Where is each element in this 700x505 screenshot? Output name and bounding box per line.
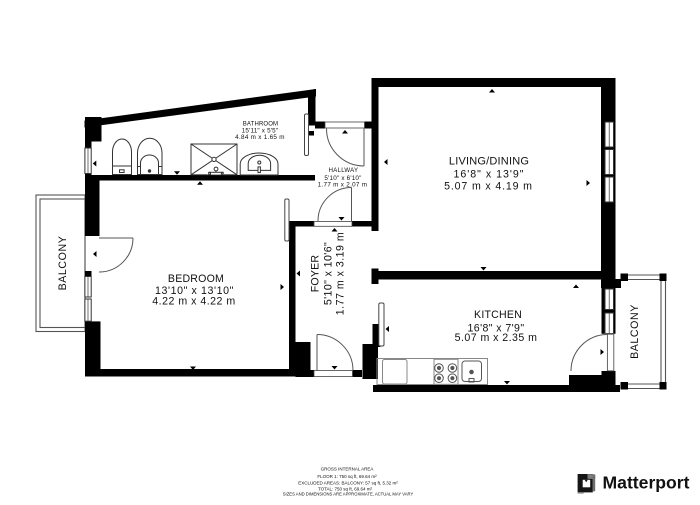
svg-text:SIZES AND DIMENSIONS ARE APPRO: SIZES AND DIMENSIONS ARE APPROXIMATE, AC… bbox=[283, 492, 414, 497]
svg-text:BATHROOM: BATHROOM bbox=[243, 122, 278, 128]
svg-text:BALCONY: BALCONY bbox=[629, 304, 641, 359]
svg-text:5'10" x 10'6": 5'10" x 10'6" bbox=[323, 242, 335, 305]
svg-text:16'8" x 13'9": 16'8" x 13'9" bbox=[453, 169, 524, 181]
svg-text:5.07 m x 4.19 m: 5.07 m x 4.19 m bbox=[444, 180, 533, 192]
svg-text:5.07 m x 2.35 m: 5.07 m x 2.35 m bbox=[455, 332, 538, 344]
svg-text:Matterport: Matterport bbox=[603, 473, 690, 493]
svg-text:GROSS INTERNAL AREA: GROSS INTERNAL AREA bbox=[321, 467, 374, 472]
svg-text:HALLWAY: HALLWAY bbox=[329, 168, 359, 174]
svg-text:FLOOR 1: 750 sq ft, 69.64 m²: FLOOR 1: 750 sq ft, 69.64 m² bbox=[317, 474, 377, 479]
svg-text:1.77 m x 3.19 m: 1.77 m x 3.19 m bbox=[334, 232, 346, 315]
svg-text:FOYER: FOYER bbox=[310, 255, 322, 293]
svg-text:EXCLUDED AREAS: BALCONY: 57 sq: EXCLUDED AREAS: BALCONY: 57 sq ft, 5.32 … bbox=[298, 480, 398, 485]
svg-text:KITCHEN: KITCHEN bbox=[474, 309, 522, 321]
svg-text:BALCONY: BALCONY bbox=[57, 236, 69, 291]
svg-text:4.22 m x 4.22 m: 4.22 m x 4.22 m bbox=[152, 296, 235, 308]
svg-text:1.77 m x 2.07 m: 1.77 m x 2.07 m bbox=[318, 182, 368, 189]
svg-text:BEDROOM: BEDROOM bbox=[168, 273, 224, 285]
svg-text:4.84 m x 1.65 m: 4.84 m x 1.65 m bbox=[235, 134, 285, 141]
svg-text:LIVING/DINING: LIVING/DINING bbox=[449, 156, 529, 168]
